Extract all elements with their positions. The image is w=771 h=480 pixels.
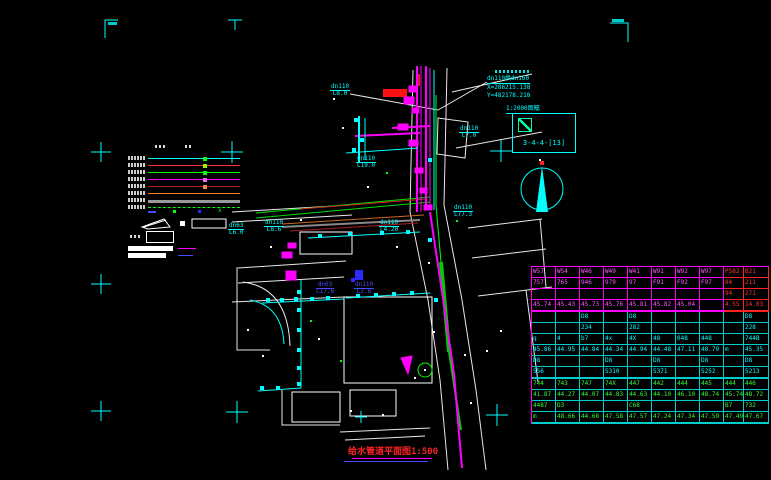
table-cell: D8 [628,312,652,323]
table-cell: 47.24 [652,412,676,424]
hydrant-square-icon [294,297,298,301]
speck [340,360,342,362]
table-cell [556,323,580,334]
table-cell: 48.79 [700,345,724,356]
legend-symbol-dot [173,210,176,213]
hydrant-square-icon [318,234,322,238]
index-map-code: 3-4-4-[13] [513,139,575,147]
table-cell: 747 [580,379,604,390]
table-cell: 45.76 [604,300,628,312]
elevation-table: W57W54W46W49W41W91W92W97P582B21757765946… [531,266,769,424]
table-cell: 47.49 [724,412,744,424]
speck [300,219,302,221]
legend-header-stub [185,145,193,148]
hydrant-square-icon [310,297,314,301]
speck [470,402,472,404]
legend-line-sample [148,186,240,187]
legend-symbol-dot [198,210,201,213]
legend-line-sample [148,200,240,203]
legend-line-list [128,155,248,211]
title-underline-magenta [352,458,432,459]
table-cell: 4x [604,334,628,345]
table-cell [580,367,604,379]
speck [500,330,502,332]
north-arrow-icon [521,159,563,212]
table-cell [532,289,556,300]
legend-line-marker [203,157,207,161]
hydrant-square-icon [280,298,284,302]
legend-line-sample [148,193,240,194]
table-cell [676,289,700,300]
table-cell: 47.58 [604,412,628,424]
pipe-label: dn110L7.0 [459,126,479,139]
table-cell: 4487 [532,401,556,412]
table-cell: 448 [700,334,724,345]
table-cell [628,367,652,379]
pipe-label: dn63L17.6 [316,282,334,295]
table-cell: m [724,345,744,356]
table-cell: 48.66 [556,412,580,424]
table-cell: 45.74 [724,390,744,401]
node-x-coord: X=286215.138 [487,84,530,92]
table-cell: P582 [724,267,744,278]
cad-viewport: x dn110换dn160 X=286215.138 Y=482178.218 … [0,0,771,480]
speck [428,262,430,264]
table-cell: W91 [652,267,676,278]
speck [247,329,249,331]
table-cell: 44.48 [652,345,676,356]
table-cell: 234 [580,323,604,334]
table-cell: 74X [604,379,628,390]
table-cell: 47.11 [676,345,700,356]
table-cell [628,289,652,300]
table-cell: 4.55 [724,300,744,312]
table-cell: 211 [744,278,769,289]
table-cell: F91 [652,278,676,289]
table-cell: D8 [532,356,556,367]
speck [262,355,264,357]
speck [367,186,369,188]
table-cell: 45.43 [556,300,580,312]
legend-symbol-blue-dash [148,211,156,213]
table-cell: 44.68 [580,412,604,424]
speck [396,246,398,248]
table-cell: 445 [700,379,724,390]
table-cell: 4X [628,334,652,345]
legend-row [128,155,248,162]
table-cell [556,312,580,323]
table-cell: 47.67 [744,412,769,424]
hydrant-square-icon [406,230,410,234]
pipe-label: dn110L77.3 [453,205,473,218]
parcel-lines [232,68,552,470]
legend-label-stub [130,235,142,238]
hydrant-square-icon [410,291,414,295]
table-cell [676,367,700,379]
speck [486,350,488,352]
table-cell: 442 [652,379,676,390]
table-cell [628,356,652,367]
table-cell [532,323,556,334]
pipe-label: dn63L6.0 [228,223,244,236]
table-cell: F97 [700,278,724,289]
table-cell: b7 [580,334,604,345]
hydrant-square-icon [374,293,378,297]
table-cell [724,356,744,367]
table-cell: F92 [676,278,700,289]
table-cell: 44.34 [604,345,628,356]
legend-row [128,183,248,190]
table-cell [652,401,676,412]
table-cell [532,312,556,323]
speck [433,331,435,333]
table-cell: 46.10 [676,390,700,401]
hydrant-square-icon [360,138,364,142]
legend-symbol-x: x [218,208,222,214]
title-underline-blue [344,461,428,462]
hydrant-square-icon [260,386,264,390]
hydrant-square-icon [266,298,270,302]
table-cell: B21 [744,267,769,278]
speck [382,414,384,416]
legend-line-sample [148,207,240,208]
table-cell [556,289,580,300]
pipe-label: dn110L2.6 [354,282,374,295]
hydrant-square-icon [297,328,301,332]
table-cell: 44.83 [604,390,628,401]
pipe-label: dn110L8.0 [330,84,350,97]
hydrant-square-icon [428,238,432,242]
table-cell: 228 [744,323,769,334]
speck [414,377,416,379]
table-cell [556,367,580,379]
table-cell: 271 [744,289,769,300]
hydrant-square-icon [297,366,301,370]
table-cell: D8 [652,356,676,367]
table-cell [652,312,676,323]
hydrant-square-icon [348,232,352,236]
legend-line-sample [148,172,240,173]
speck [456,220,458,222]
magenta-pipes [282,66,462,468]
table-cell: 41.87 [532,390,556,401]
table-cell: 44.95 [556,345,580,356]
table-cell [676,356,700,367]
table-cell: 44.84 [580,345,604,356]
speck [386,172,388,174]
pipe-label: dn110L4.20 [379,220,399,233]
table-cell: q [532,334,556,345]
table-cell: 743 [556,379,580,390]
table-cell: 45.74 [532,300,556,312]
table-cell: D8 [580,312,604,323]
table-cell [604,312,628,323]
table-cell: W57 [532,267,556,278]
table-cell: D8 [604,356,628,367]
table-cell: 44.94 [628,345,652,356]
table-cell: 946 [580,278,604,289]
table-cell: 45.73 [580,300,604,312]
table-cell: 47.57 [628,412,652,424]
table-cell: 5310 [604,367,628,379]
table-cell: 45.82 [652,300,676,312]
table-cell: 4 [556,334,580,345]
table-cell: 444 [676,379,700,390]
table-cell [676,401,700,412]
table-cell: 744B [744,334,769,345]
table-cell: 765 [556,278,580,289]
speck [350,410,352,412]
legend-row [128,176,248,183]
legend-line-sample [148,158,240,159]
table-cell: B7 [724,401,744,412]
table-cell [556,356,580,367]
legend-line-marker [203,185,207,189]
table-cell: 45.04 [676,300,700,312]
hydrant-square-icon [352,148,356,152]
table-cell: 48.74 [700,390,724,401]
table-cell: 757 [532,278,556,289]
table-cell [700,323,724,334]
scale-bar [128,253,166,258]
table-cell: 45.35 [744,345,769,356]
table-cell: D8 [744,312,769,323]
node-pipe-label: dn110换dn160 [487,75,530,84]
drawing-title: 给水管道平面图1:500 [348,444,438,457]
legend-line-sample [148,179,240,180]
hydrant-square-icon [276,386,280,390]
table-cell [700,289,724,300]
pipe-label: dn110L19.0 [356,156,376,169]
table-cell: W97 [700,267,724,278]
table-cell [580,401,604,412]
legend-frame-box [146,231,174,243]
table-cell [652,289,676,300]
table-cell: 5371 [652,367,676,379]
table-cell: 446 [744,379,769,390]
hydrant-square-icon [297,382,301,386]
speck [464,354,466,356]
scale-bar-magenta [178,248,196,249]
table-cell [604,323,628,334]
building-outlines [292,232,432,422]
table-cell [700,300,724,312]
speck [333,98,335,100]
table-cell [604,289,628,300]
table-cell: W92 [676,267,700,278]
scale-bar [128,246,173,251]
table-cell: m [532,412,556,424]
index-map-box: 3-4-4-[13] [512,113,576,153]
table-cell: 45.81 [628,300,652,312]
table-cell [676,312,700,323]
table-cell: 14.03 [744,300,769,312]
hydrant-square-icon [297,348,301,352]
table-cell: D8 [744,356,769,367]
speck [342,127,344,129]
table-cell: 048 [676,334,700,345]
table-cell: W41 [628,267,652,278]
hydrant-square-icon [434,298,438,302]
table-cell: 744 [532,379,556,390]
misc-lines [282,215,424,227]
table-cell: 44.07 [580,390,604,401]
legend-row [128,197,248,204]
legend-header-stub [155,145,165,148]
table-cell [604,401,628,412]
hydrant-square-icon [326,296,330,300]
table-cell [700,401,724,412]
speck [270,246,272,248]
hydrant-square-icon [354,118,358,122]
table-cell: W46 [580,267,604,278]
table-cell [580,356,604,367]
table-cell: W54 [556,267,580,278]
table-cell: D3 [556,401,580,412]
table-cell: 44.63 [628,390,652,401]
hydrant-square-icon [428,158,432,162]
speck [310,320,312,322]
table-cell: 732 [744,401,769,412]
table-cell: 47.34 [676,412,700,424]
legend-row [128,169,248,176]
table-cell [652,323,676,334]
table-cell [724,312,744,323]
table-cell [580,289,604,300]
table-cell: 94 [724,289,744,300]
node-y-coord: Y=482178.218 [487,92,530,100]
table-cell: 84 [724,278,744,289]
legend-line-marker [203,164,207,168]
table-cell: 444 [724,379,744,390]
table-cell: 48 [652,334,676,345]
legend-line-marker [203,171,207,175]
legend-row [128,162,248,169]
table-cell: D8 [700,356,724,367]
speck [424,369,426,371]
table-cell: 47.59 [700,412,724,424]
table-cell [676,323,700,334]
legend-line-marker [203,178,207,182]
hydrant-square-icon [392,292,396,296]
table-cell: 44.10 [652,390,676,401]
table-cell: W49 [604,267,628,278]
table-cell: 979 [604,278,628,289]
node-name-stub [495,70,529,73]
table-cell: 44.27 [556,390,580,401]
table-cell: C68 [628,401,652,412]
hatched-square-icon [518,118,532,132]
table-cell: 5252 [700,367,724,379]
speck [318,338,320,340]
legend-row [128,190,248,197]
table-cell [724,334,744,345]
table-cell [724,323,744,334]
table-cell: 556 [532,367,556,379]
legend-row [128,204,248,211]
table-cell [724,367,744,379]
table-cell: 97 [628,278,652,289]
table-cell: 45.86 [532,345,556,356]
table-cell: 447 [628,379,652,390]
hydrant-square-icon [297,290,301,294]
node-annotation: dn110换dn160 X=286215.138 Y=482178.218 [487,70,530,100]
legend-line-sample [148,165,240,166]
table-cell: 282 [628,323,652,334]
table-cell: 5213 [744,367,769,379]
table-cell: 48.72 [744,390,769,401]
hydrant-square-icon [297,308,301,312]
table-cell [700,312,724,323]
pipe-label: dn110L8.6 [264,220,284,233]
scale-bar-blue [178,255,193,256]
